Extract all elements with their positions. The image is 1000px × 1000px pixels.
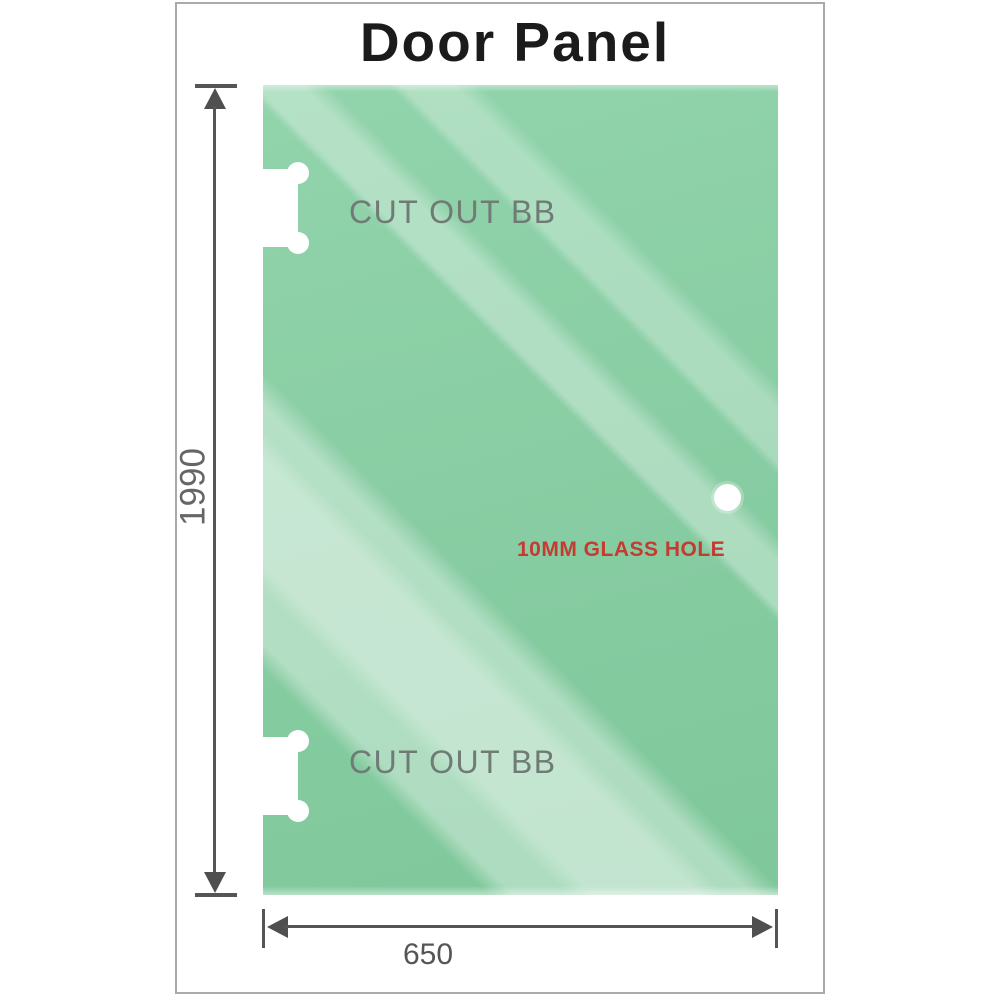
- dimension-cap-bottom: [195, 893, 237, 897]
- hinge-cutout-top: [262, 169, 298, 247]
- dimension-tick-left: [262, 909, 265, 948]
- width-dimension-line: [284, 925, 756, 928]
- height-dimension-label: 1990: [176, 448, 211, 526]
- cutout-bottom-label: CUT OUT BB: [349, 746, 557, 778]
- glass-hole-label: 10MM GLASS HOLE: [517, 538, 725, 561]
- width-dimension-label: 650: [403, 940, 453, 970]
- page-background: Door Panel CUT OUT BB CUT OUT BB 10MM GL…: [0, 0, 1000, 1000]
- page-title: Door Panel: [190, 12, 840, 73]
- arrow-down-icon: [204, 872, 226, 893]
- arrow-right-icon: [752, 916, 773, 938]
- glass-hole: [714, 484, 741, 511]
- hinge-cutout-bottom: [262, 737, 298, 815]
- height-dimension-line: [213, 106, 216, 874]
- dimension-tick-right: [775, 909, 778, 948]
- cutout-top-label: CUT OUT BB: [349, 196, 557, 228]
